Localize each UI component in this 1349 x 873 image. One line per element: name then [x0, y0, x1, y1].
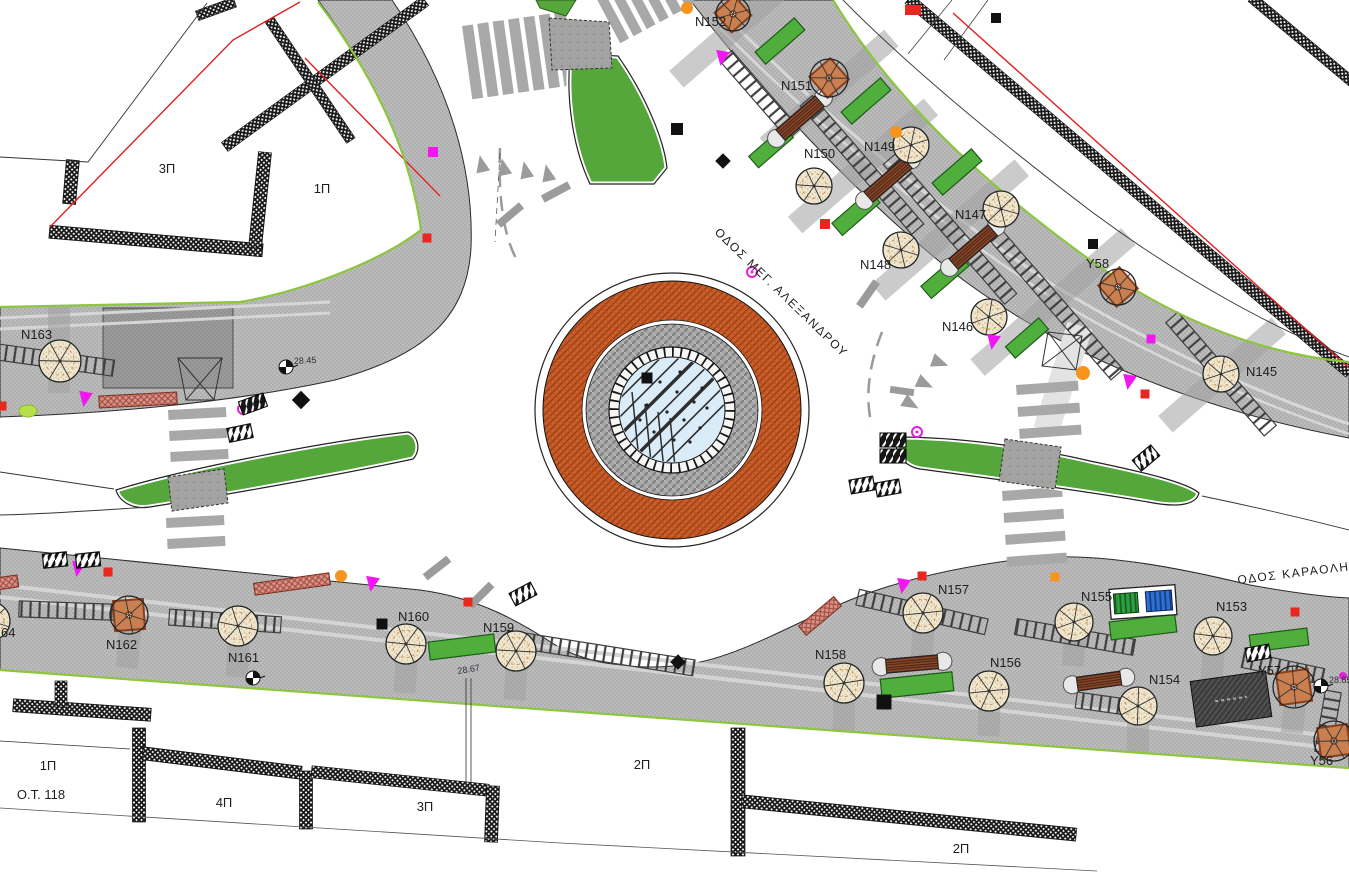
tree-N162	[110, 596, 148, 634]
tree-label-N150: N150	[804, 146, 835, 161]
marker-square	[1147, 335, 1156, 344]
refuge-right	[999, 439, 1061, 489]
recycling-bins	[1109, 585, 1177, 620]
block-label: 3Π	[417, 799, 434, 814]
tree-label-N149: N149	[864, 139, 895, 154]
block-label: 1Π	[314, 181, 331, 196]
tree-N160	[386, 624, 426, 664]
marker-square	[1051, 573, 1060, 582]
tree-label-N155: N155	[1081, 589, 1112, 604]
tree-N150	[796, 168, 832, 204]
tree-label-N152: N152	[695, 14, 726, 29]
marker-dot	[890, 126, 902, 138]
tree-N158	[824, 663, 864, 703]
hatched-wall	[731, 728, 745, 856]
marker-square	[877, 695, 892, 710]
hatched-wall	[55, 681, 67, 707]
glass-dot	[682, 418, 685, 421]
tree-label-N147: N147	[955, 207, 986, 222]
kiosk	[1190, 671, 1272, 727]
marker-lime	[19, 405, 37, 417]
crosswalk	[1016, 381, 1082, 439]
marker-square	[1141, 390, 1150, 399]
elevation-label: 28.45	[294, 355, 317, 366]
marker-ring	[912, 427, 922, 437]
tree-N151	[809, 58, 849, 98]
block-label: 3Π	[159, 161, 176, 176]
glass-dot	[678, 370, 681, 373]
marker-square	[428, 147, 438, 157]
skylight-glass	[619, 357, 725, 463]
block-label: 1Π	[40, 758, 57, 773]
tree-N161	[218, 606, 258, 646]
tree-label-N160: N160	[398, 609, 429, 624]
refuge-top	[549, 18, 612, 70]
marker-square	[1291, 608, 1300, 617]
block-label: Ο.Τ. 118	[17, 787, 65, 802]
tree-label-N162: N162	[106, 637, 137, 652]
marker-square	[820, 219, 830, 229]
site-plan-drawing: N152N151N150N149N148N147N146Y58N145N1636…	[0, 0, 1349, 873]
marker-square	[423, 234, 432, 243]
tree-N156	[969, 671, 1009, 711]
tree-label-N157: N157	[938, 582, 969, 597]
glass-dot	[688, 440, 691, 443]
marker-square	[642, 373, 653, 384]
block-label: 2Π	[634, 757, 651, 772]
marker-square	[1088, 239, 1098, 249]
dark-sign-box	[880, 433, 906, 447]
glass-dot	[698, 426, 701, 429]
tree-label-Y56: Y56	[1310, 753, 1333, 768]
marker-dot	[335, 570, 347, 582]
glass-dot	[700, 386, 703, 389]
tree-label-N146: N146	[942, 319, 973, 334]
dark-sign-box	[880, 449, 906, 463]
marker-square	[104, 568, 113, 577]
tree-label-N145: N145	[1246, 364, 1277, 379]
marker-dot	[681, 2, 693, 14]
glass-dot	[705, 406, 708, 409]
block-label: 2Π	[953, 841, 970, 856]
marker-square	[0, 402, 7, 411]
tree-label-N154: N154	[1149, 672, 1180, 687]
tree-label-Y58: Y58	[1086, 256, 1109, 271]
tree-label-N161: N161	[228, 650, 259, 665]
hatched-wall	[300, 771, 313, 829]
tree-label-N163: N163	[21, 327, 52, 342]
marker-square	[671, 123, 683, 135]
glass-dot	[665, 410, 668, 413]
marker-rect	[905, 5, 921, 15]
tree-label-N151: N151	[781, 78, 812, 93]
roundabout	[535, 273, 809, 547]
green-bin	[1113, 592, 1138, 614]
tree-N154	[1119, 687, 1157, 725]
hatched-wall	[133, 728, 146, 822]
tree-label-Y57: Y57	[1258, 663, 1281, 678]
hatched-wall	[485, 786, 500, 842]
elevation-label: 28.85	[1329, 675, 1349, 685]
glass-dot	[638, 418, 641, 421]
tree-label-N148: N148	[860, 257, 891, 272]
hatched-sign-box	[75, 552, 100, 568]
tree-N157	[903, 593, 943, 633]
blue-bin	[1145, 590, 1172, 612]
tree-N145	[1203, 356, 1239, 392]
tree-N153	[1194, 617, 1232, 655]
tree-label-N159: N159	[483, 620, 514, 635]
tree-label-N153: N153	[1216, 599, 1247, 614]
tree-N147	[983, 191, 1019, 227]
tree-N146	[971, 299, 1007, 335]
glass-dot	[672, 438, 675, 441]
glass-dot	[645, 403, 648, 406]
hatched-sign-box	[42, 552, 67, 568]
glass-dot	[692, 400, 695, 403]
tree-N159	[496, 631, 536, 671]
crosswalk	[168, 407, 229, 462]
marker-square	[464, 598, 473, 607]
tree-N155	[1055, 603, 1093, 641]
marker-square	[377, 619, 388, 630]
marker-dot	[1076, 366, 1090, 380]
block-label: 4Π	[216, 795, 233, 810]
glass-dot	[652, 430, 655, 433]
tree-label-N164: 64	[1, 625, 15, 640]
glass-dot	[675, 390, 678, 393]
glass-dot	[658, 380, 661, 383]
tree-label-N156: N156	[990, 655, 1021, 670]
site-plan-stage: N152N151N150N149N148N147N146Y58N145N1636…	[0, 0, 1349, 873]
tree-label-N158: N158	[815, 647, 846, 662]
tree-N163	[39, 340, 81, 382]
marker-square	[918, 572, 927, 581]
marker-square	[991, 13, 1001, 23]
